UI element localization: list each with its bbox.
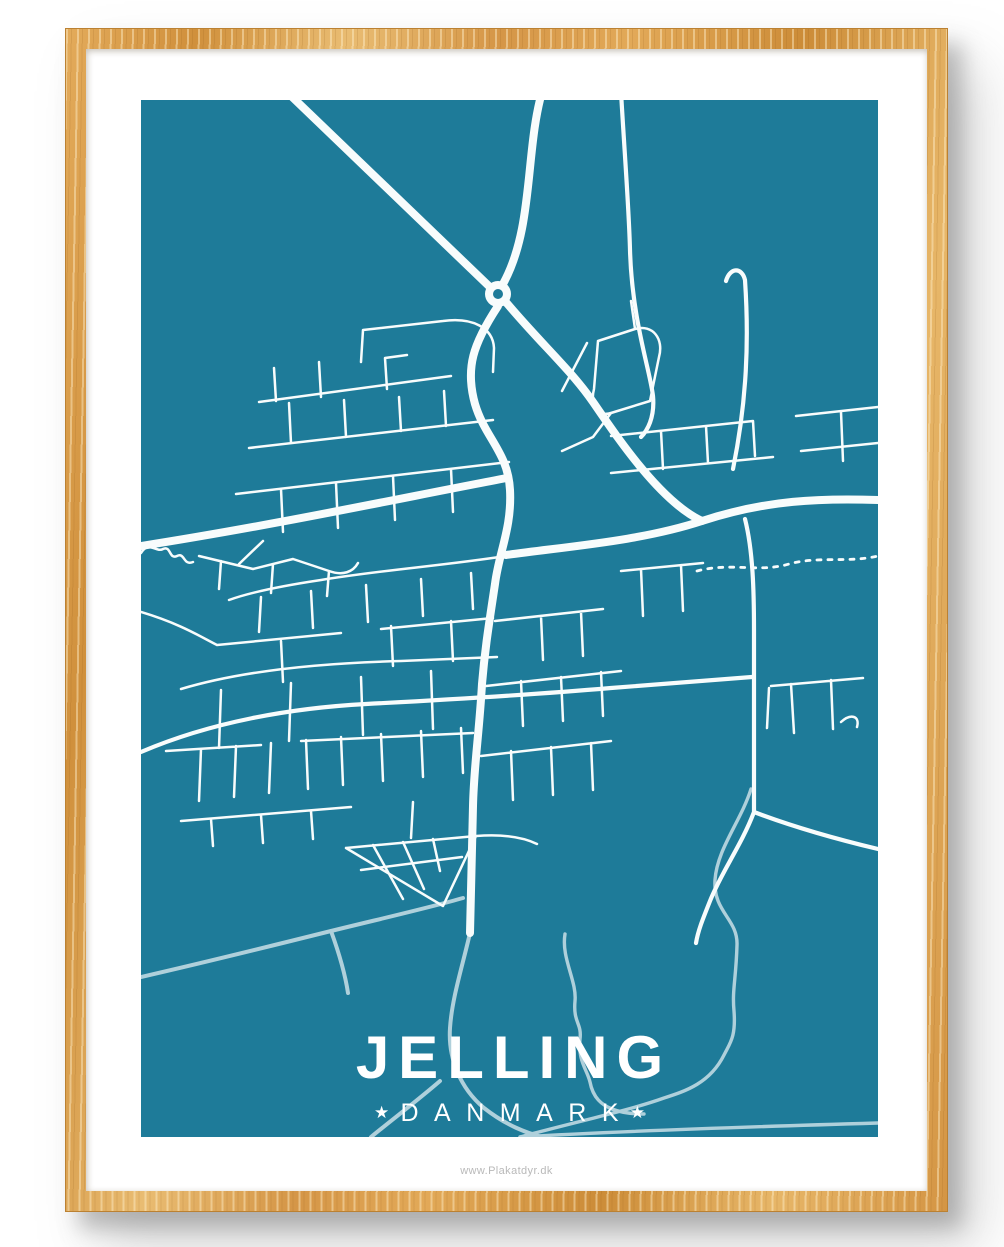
pond-shapes [149,449,700,899]
wooden-frame: JELLING ★ DANMARK ★ www.Plakatdyr.dk [65,28,948,1212]
roundabout [485,281,511,307]
poster-title-block: JELLING ★ DANMARK ★ [141,1028,878,1126]
major-roads [141,100,878,933]
white-mat: JELLING ★ DANMARK ★ www.Plakatdyr.dk [86,49,927,1191]
framed-poster-photo: JELLING ★ DANMARK ★ www.Plakatdyr.dk [0,0,1004,1247]
watermark-text: www.Plakatdyr.dk [86,1165,927,1177]
poster-subtitle-label: DANMARK [400,1101,634,1126]
map-poster: JELLING ★ DANMARK ★ [141,100,878,1137]
dashed-trail [697,556,878,571]
star-icon: ★ [630,1104,645,1121]
city-map-graphic [141,100,878,1137]
poster-subtitle: ★ DANMARK ★ [141,1101,878,1126]
poster-title: JELLING [141,1028,878,1088]
star-icon: ★ [374,1104,389,1121]
